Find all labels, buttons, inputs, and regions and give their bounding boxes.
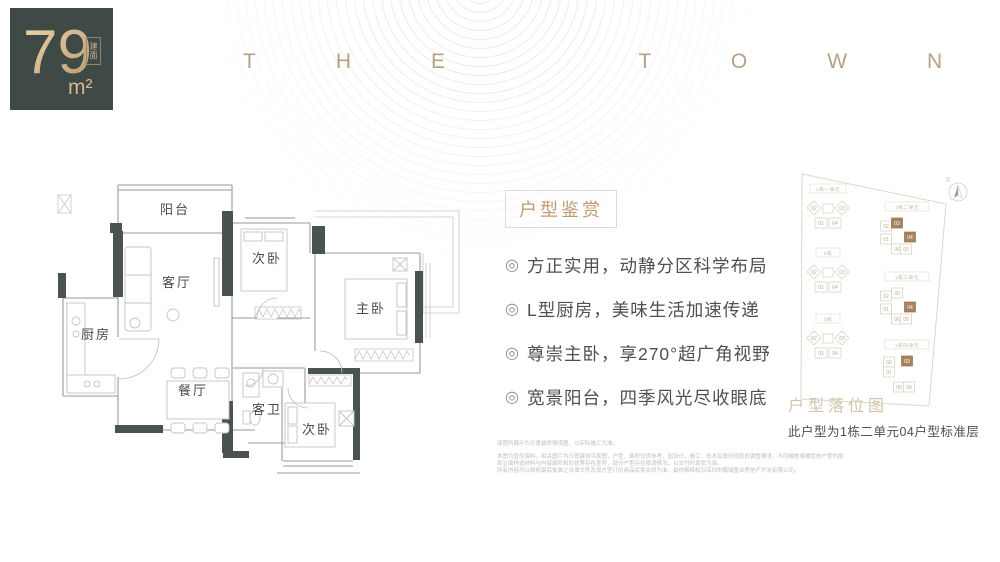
svg-text:01: 01: [883, 307, 889, 313]
room-label-dining: 餐厅: [178, 383, 208, 398]
svg-text:04: 04: [907, 235, 913, 241]
svg-text:03: 03: [839, 270, 845, 276]
svg-text:01: 01: [818, 351, 824, 357]
brand-title: THE TOWN: [243, 50, 1000, 74]
svg-text:04: 04: [907, 305, 913, 311]
svg-text:1栋二单元: 1栋二单元: [895, 204, 919, 211]
site-plan-diagram: 北 1栋一单元 02 03 01 04 2栋 02 03 01 04 3栋: [785, 165, 1000, 415]
room-label-living: 客厅: [162, 275, 192, 290]
ring-bullet-icon: ◎: [505, 299, 520, 319]
svg-text:02: 02: [886, 360, 892, 366]
svg-text:06: 06: [894, 317, 900, 323]
building-cluster-highlight: 1栋三单元 02 03 01 04 06 05: [881, 272, 930, 324]
svg-text:03: 03: [904, 359, 910, 365]
room-label-balcony: 阳台: [160, 202, 190, 217]
poster-page: 79 建面 m² THE TOWN: [0, 0, 1000, 562]
feature-item: ◎尊崇主卧，享270°超广角视野: [505, 341, 795, 365]
disclaimer-line: 部立面构造材料与内部面积和形状等存在差异，部分户型存在微调情况，以交付时现状为准…: [497, 461, 997, 468]
features-panel: 户型鉴赏 ◎方正实用，动静分区科学布局 ◎L型厨房，美味生活加速传递 ◎尊崇主卧…: [505, 190, 795, 429]
svg-text:05: 05: [903, 247, 909, 253]
disclaimer-line: 该图所展示为示意装修情境图，以实际施工为准。: [497, 441, 997, 448]
ring-bullet-icon: ◎: [505, 255, 520, 275]
svg-text:02: 02: [883, 224, 889, 230]
feature-text: 方正实用，动静分区科学布局: [527, 253, 768, 278]
room-label-bedroom-bottom: 次卧: [302, 422, 332, 437]
dining-table-and-chairs: [167, 368, 229, 433]
building-cluster-highlight: 1栋二单元 02 03 01 04 06 05: [881, 202, 930, 254]
svg-text:04: 04: [832, 351, 838, 357]
site-plan-caption: 此户型为1栋二单元04户型标准层: [788, 421, 979, 440]
svg-text:02: 02: [811, 270, 817, 276]
sofa: [125, 247, 151, 331]
svg-text:03: 03: [839, 206, 845, 212]
svg-text:03: 03: [894, 291, 900, 297]
svg-text:06: 06: [894, 247, 900, 253]
compass-icon: 北: [945, 176, 967, 201]
svg-text:1栋四单元: 1栋四单元: [895, 342, 919, 349]
svg-text:04: 04: [906, 385, 912, 391]
svg-text:02: 02: [883, 294, 889, 300]
svg-text:1栋三单元: 1栋三单元: [895, 274, 919, 281]
svg-text:1栋一单元: 1栋一单元: [816, 186, 840, 193]
kitchen-counter: [67, 303, 115, 393]
bed-master: [345, 258, 407, 339]
building-cluster-highlight: 1栋四单元 02 03 01 05 04: [884, 340, 930, 392]
tv-cabinet: [214, 258, 219, 306]
area-tag: 建面: [86, 37, 101, 65]
disclaimer-line: 本图为宣传资料，相关图片为示意建设平面图，户型、面积仅供参考，因设计、施工、技术…: [497, 454, 997, 461]
features-list: ◎方正实用，动静分区科学布局 ◎L型厨房，美味生活加速传递 ◎尊崇主卧，享270…: [505, 253, 795, 409]
svg-text:03: 03: [894, 221, 900, 227]
area-value: 79: [23, 22, 92, 84]
ring-bullet-icon: ◎: [505, 387, 520, 407]
building-cluster: 1栋一单元 02 03 01 04: [807, 184, 849, 228]
room-label-bedroom-top: 次卧: [252, 251, 282, 266]
svg-text:2栋: 2栋: [824, 250, 832, 257]
disclaimer: 该图所展示为示意装修情境图，以实际施工为准。 本图为宣传资料，相关图片为示意建设…: [497, 441, 997, 475]
feature-item: ◎L型厨房，美味生活加速传递: [505, 297, 795, 321]
svg-text:01: 01: [818, 285, 824, 291]
ring-bullet-icon: ◎: [505, 343, 520, 363]
feature-text: 尊崇主卧，享270°超广角视野: [527, 341, 771, 366]
area-unit: m²: [68, 76, 93, 100]
svg-text:3栋: 3栋: [824, 316, 832, 323]
feature-text: 宽景阳台，四季风光尽收眼底: [527, 385, 768, 410]
room-label-master: 主卧: [356, 301, 386, 316]
floor-plan-diagram: 阳台 客厅 次卧 主卧 厨房 餐厅 客卫 次卧: [55, 163, 485, 508]
feature-item: ◎宽景阳台，四季风光尽收眼底: [505, 385, 795, 409]
svg-text:02: 02: [811, 336, 817, 342]
svg-text:05: 05: [896, 385, 902, 391]
svg-text:03: 03: [839, 336, 845, 342]
feature-item: ◎方正实用，动静分区科学布局: [505, 253, 795, 277]
area-badge: 79 建面 m²: [10, 8, 113, 110]
building-cluster: 2栋 02 03 01 04: [807, 248, 849, 292]
feature-text: L型厨房，美味生活加速传递: [527, 297, 760, 322]
svg-text:04: 04: [832, 285, 838, 291]
svg-text:01: 01: [818, 221, 824, 227]
room-label-kitchen: 厨房: [81, 327, 111, 342]
svg-text:01: 01: [886, 370, 892, 376]
svg-text:05: 05: [903, 317, 909, 323]
svg-text:02: 02: [811, 206, 817, 212]
svg-text:01: 01: [883, 237, 889, 243]
building-cluster: 3栋 02 03 01 04: [807, 314, 849, 358]
door-arcs: [119, 298, 342, 408]
site-plan-title: 户型落位图: [788, 392, 888, 416]
disclaimer-line: 所有内容均以政府最后批准之法律文件及双方签订的商品买卖合同为准，最终解释权归深圳…: [497, 468, 997, 475]
svg-text:北: 北: [945, 176, 950, 183]
svg-text:04: 04: [832, 221, 838, 227]
features-header: 户型鉴赏: [505, 190, 617, 228]
room-label-bath: 客卫: [252, 402, 282, 417]
